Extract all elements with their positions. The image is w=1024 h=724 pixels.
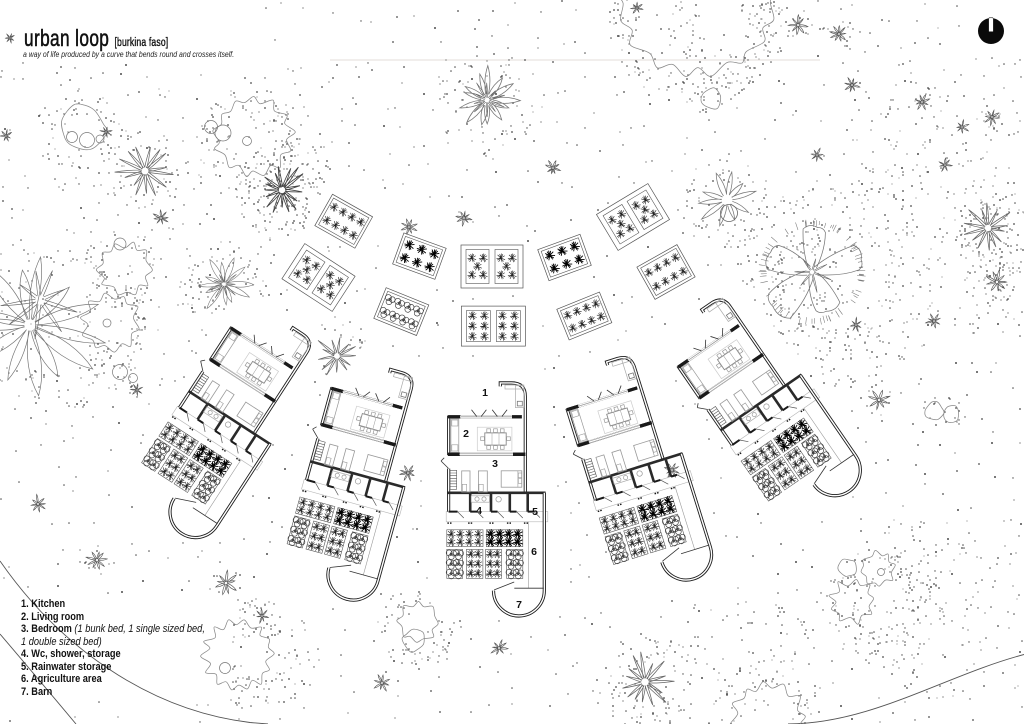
svg-text:2: 2 (463, 428, 469, 440)
svg-text:1: 1 (482, 387, 488, 399)
svg-text:3: 3 (492, 458, 498, 470)
svg-text:6: 6 (531, 546, 537, 558)
svg-text:5: 5 (532, 506, 538, 518)
svg-text:7: 7 (516, 599, 522, 611)
svg-text:4: 4 (476, 505, 482, 517)
